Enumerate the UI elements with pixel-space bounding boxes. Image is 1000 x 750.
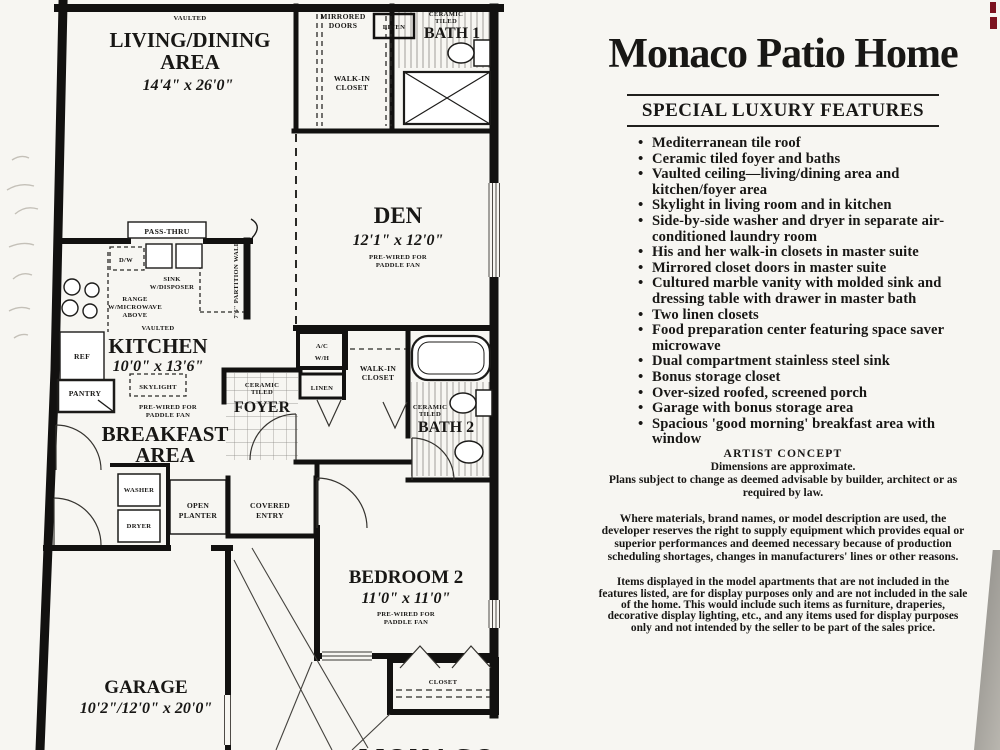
toilet2-tank: [476, 390, 492, 416]
feature-item: Side-by-side washer and dryer in separat…: [652, 214, 982, 245]
svg-text:CERAMIC: CERAMIC: [245, 382, 279, 389]
ac-wh-box: [298, 332, 346, 368]
range-burner: [83, 304, 97, 318]
svg-text:REF: REF: [74, 352, 90, 361]
svg-text:ENTRY: ENTRY: [256, 511, 284, 520]
svg-text:TILED: TILED: [435, 18, 457, 25]
svg-text:DEN: DEN: [374, 203, 423, 228]
svg-text:GARAGE: GARAGE: [104, 677, 187, 698]
toilet2-bowl: [450, 393, 476, 413]
svg-text:ABOVE: ABOVE: [123, 312, 148, 319]
svg-text:AREA: AREA: [135, 443, 195, 467]
feature-item: Food preparation center featuring space …: [652, 323, 982, 354]
disclaimer-line: Dimensions are approximate.: [597, 461, 969, 474]
artist-concept-label: ARTIST CONCEPT: [597, 448, 969, 461]
features-heading: SPECIAL LUXURY FEATURES: [627, 94, 939, 127]
svg-text:PRE-WIRED FOR: PRE-WIRED FOR: [377, 611, 435, 618]
svg-text:10'2"/12'0" x 20'0": 10'2"/12'0" x 20'0": [80, 700, 212, 717]
svg-text:BATH 1: BATH 1: [424, 25, 480, 42]
svg-text:PRE-WIRED FOR: PRE-WIRED FOR: [139, 404, 197, 411]
disclaimer-block: ARTIST CONCEPT Dimensions are approximat…: [597, 448, 969, 634]
svg-text:A/C: A/C: [316, 343, 328, 350]
disclaimer-paragraph: Where materials, brand names, or model d…: [597, 513, 969, 565]
svg-text:WASHER: WASHER: [124, 487, 154, 494]
feature-item: Two linen closets: [652, 308, 982, 324]
svg-text:7'6" PARTITION WALL: 7'6" PARTITION WALL: [233, 241, 240, 318]
svg-text:PANTRY: PANTRY: [69, 389, 102, 398]
svg-text:WALK-IN: WALK-IN: [360, 364, 396, 373]
floor-plan: VAULTED LIVING/DINING AREA 14'4" x 26'0"…: [0, 0, 560, 750]
scan-red-mark: [990, 17, 997, 29]
bathtub-inner: [418, 342, 484, 374]
svg-text:W/H: W/H: [315, 355, 330, 362]
range-burner: [64, 279, 80, 295]
svg-text:14'4" x 26'0": 14'4" x 26'0": [143, 77, 234, 94]
disclaimer-line: Plans subject to change as deemed advisa…: [597, 474, 969, 500]
svg-text:LINEN: LINEN: [311, 385, 333, 392]
svg-text:WALK-IN: WALK-IN: [334, 74, 370, 83]
svg-text:COVERED: COVERED: [250, 501, 290, 510]
feature-item: Ceramic tiled foyer and baths: [652, 152, 982, 168]
svg-text:CLOSET: CLOSET: [429, 679, 458, 686]
range-burner: [85, 283, 99, 297]
bifold-door: [317, 400, 341, 426]
feature-item: Mirrored closet doors in master suite: [652, 261, 982, 277]
svg-text:MONACO: MONACO: [359, 743, 497, 750]
svg-text:PADDLE FAN: PADDLE FAN: [146, 412, 190, 419]
laundry-fixtures: [118, 474, 160, 542]
svg-text:PADDLE FAN: PADDLE FAN: [384, 619, 428, 626]
svg-text:AREA: AREA: [160, 50, 220, 74]
scan-red-mark: [990, 2, 996, 13]
feature-item: Spacious 'good morning' breakfast area w…: [652, 417, 982, 448]
feature-item: Mediterranean tile roof: [652, 136, 982, 152]
svg-text:KITCHEN: KITCHEN: [108, 334, 207, 358]
svg-text:CERAMIC: CERAMIC: [429, 11, 463, 18]
sink-basin-1: [146, 244, 172, 268]
scan-smudges: [7, 156, 38, 338]
svg-text:CERAMIC: CERAMIC: [413, 404, 447, 411]
sink-basin-2: [176, 244, 202, 268]
svg-text:W/MICROWAVE: W/MICROWAVE: [108, 304, 162, 311]
svg-text:SKYLIGHT: SKYLIGHT: [139, 384, 177, 391]
svg-text:11'0" x 11'0": 11'0" x 11'0": [362, 590, 451, 607]
range-burner: [62, 300, 78, 316]
feature-item: His and her walk-in closets in master su…: [652, 245, 982, 261]
svg-text:CLOSET: CLOSET: [362, 373, 395, 382]
svg-text:MIRRORED: MIRRORED: [320, 12, 366, 21]
bifold-door: [383, 402, 407, 428]
svg-text:PLANTER: PLANTER: [179, 511, 218, 520]
svg-text:DRYER: DRYER: [127, 523, 152, 530]
toilet1-bowl: [448, 43, 474, 63]
svg-text:VAULTED: VAULTED: [142, 325, 175, 332]
svg-text:FOYER: FOYER: [234, 399, 290, 416]
feature-item: Cultured marble vanity with molded sink …: [652, 276, 982, 307]
svg-text:PRE-WIRED FOR: PRE-WIRED FOR: [369, 254, 427, 261]
svg-text:LINEN: LINEN: [383, 24, 405, 31]
feature-item: Bonus storage closet: [652, 370, 982, 386]
svg-text:SINK: SINK: [163, 276, 181, 283]
svg-text:TILED: TILED: [419, 411, 441, 418]
svg-text:PASS-THRU: PASS-THRU: [144, 227, 189, 236]
svg-text:TILED: TILED: [251, 389, 273, 396]
feature-item: Vaulted ceiling—living/dining area and k…: [652, 167, 982, 198]
svg-text:OPEN: OPEN: [187, 501, 210, 510]
brochure-page: VAULTED LIVING/DINING AREA 14'4" x 26'0"…: [0, 0, 1000, 750]
toilet1-tank: [474, 40, 490, 66]
pass-thru-arrow: [251, 219, 257, 238]
svg-text:DOORS: DOORS: [329, 21, 358, 30]
svg-text:RANGE: RANGE: [122, 296, 148, 303]
svg-text:12'1" x 12'0": 12'1" x 12'0": [353, 232, 444, 249]
feature-item: Over-sized roofed, screened porch: [652, 386, 982, 402]
feature-item: Dual compartment stainless steel sink: [652, 354, 982, 370]
svg-text:LIVING/DINING: LIVING/DINING: [109, 28, 270, 52]
text-column: Monaco Patio Home SPECIAL LUXURY FEATURE…: [582, 0, 984, 750]
svg-text:D/W: D/W: [119, 257, 133, 264]
svg-text:BATH 2: BATH 2: [418, 419, 474, 436]
svg-text:BEDROOM 2: BEDROOM 2: [349, 567, 464, 588]
svg-text:VAULTED: VAULTED: [174, 15, 207, 22]
svg-text:W/DISPOSER: W/DISPOSER: [150, 284, 194, 291]
features-list: Mediterranean tile roof Ceramic tiled fo…: [582, 136, 982, 448]
feature-item: Garage with bonus storage area: [652, 401, 982, 417]
svg-text:CLOSET: CLOSET: [336, 83, 369, 92]
svg-text:10'0" x 13'6": 10'0" x 13'6": [113, 358, 204, 375]
bath2-sink: [455, 441, 483, 463]
svg-text:PADDLE FAN: PADDLE FAN: [376, 262, 420, 269]
disclaimer-paragraph: Items displayed in the model apartments …: [597, 577, 969, 634]
feature-item: Skylight in living room and in kitchen: [652, 198, 982, 214]
page-title: Monaco Patio Home: [582, 30, 984, 78]
